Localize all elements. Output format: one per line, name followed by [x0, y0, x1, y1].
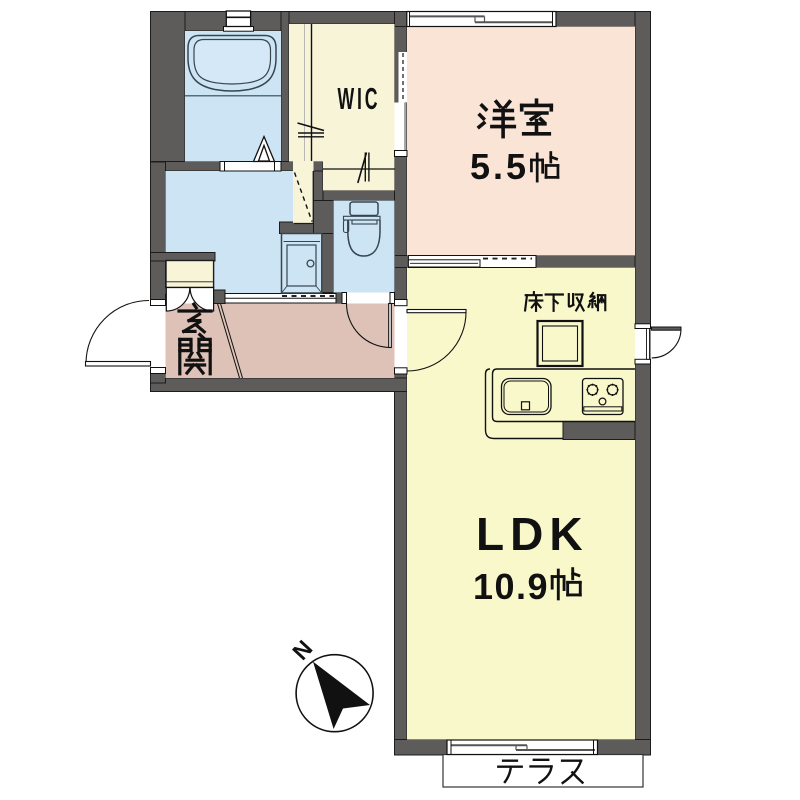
svg-text:5.5: 5.5	[470, 146, 529, 187]
svg-text:LDK: LDK	[476, 508, 589, 560]
svg-text:10.9: 10.9	[473, 566, 549, 607]
svg-text:WIC: WIC	[338, 82, 381, 116]
